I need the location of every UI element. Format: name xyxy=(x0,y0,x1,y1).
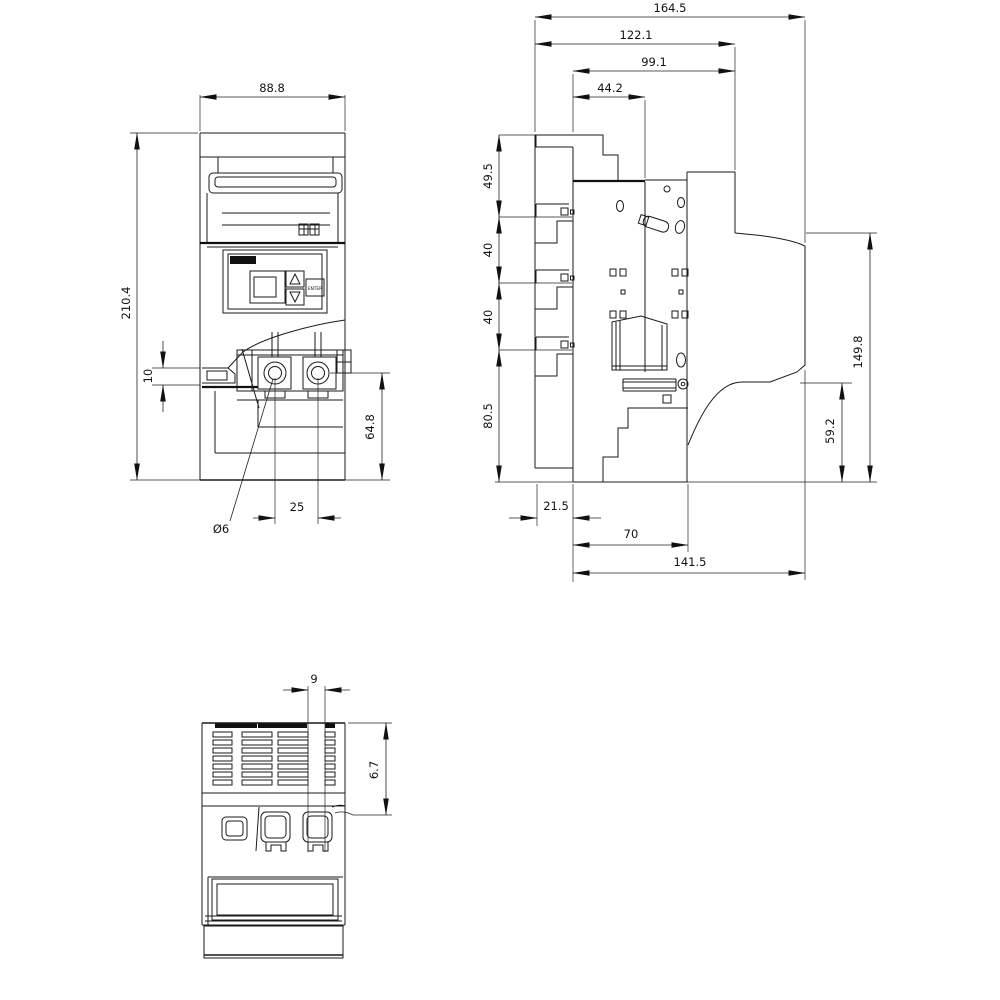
dim-vent-depth-label: 6.7 xyxy=(367,761,381,779)
dim-base-height-label: 64.8 xyxy=(363,414,377,440)
dim-base-overall-label: 141.5 xyxy=(674,555,707,569)
dim-rail-offset-label: 21.5 xyxy=(543,499,569,513)
dim-top-section-label: 49.5 xyxy=(481,163,495,189)
dim-lower-section-label: 80.5 xyxy=(481,403,495,429)
dim-front-height-label: 149.8 xyxy=(851,336,865,369)
dim-hole-diameter-label: Ø6 xyxy=(213,522,229,536)
dim-terminal-offset-label: 10 xyxy=(141,369,155,384)
dim-width-label: 88.8 xyxy=(259,81,285,95)
dim-depth-122-label: 122.1 xyxy=(620,28,653,42)
dimension-drawing: ENTER xyxy=(0,0,1000,1000)
dim-depth-44-label: 44.2 xyxy=(597,81,623,95)
display-label xyxy=(230,256,256,264)
dim-pitch-upper-label: 40 xyxy=(481,243,495,258)
dim-overall-depth-label: 164.5 xyxy=(654,1,687,15)
enter-button-label: ENTER xyxy=(308,286,322,292)
dim-height-label: 210.4 xyxy=(119,287,133,320)
dim-depth-99-label: 99.1 xyxy=(641,55,667,69)
dim-pitch-lower-label: 40 xyxy=(481,310,495,325)
dim-base-70-label: 70 xyxy=(624,527,639,541)
technical-drawing-page: ENTER xyxy=(0,0,1000,1000)
dim-terminal-pitch-label: 25 xyxy=(290,500,305,514)
paper-background xyxy=(0,0,1000,1000)
dim-slot-gap-label: 9 xyxy=(310,672,317,686)
dim-ledge-height-label: 59.2 xyxy=(823,418,837,444)
